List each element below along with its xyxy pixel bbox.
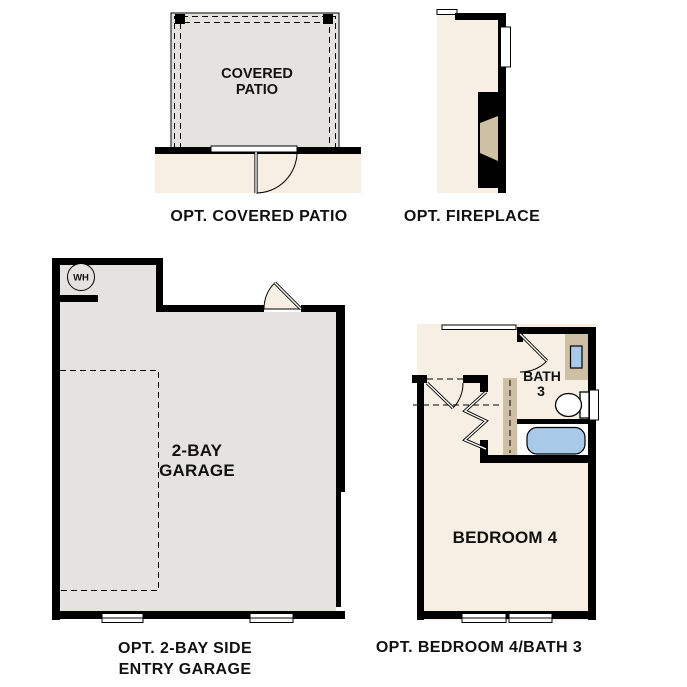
fireplace-plan: OPT. FIREPLACE — [404, 10, 540, 226]
window-behind-toilet — [590, 390, 599, 420]
bath-label-line2: 3 — [537, 383, 545, 399]
floor-plan-drawing: COVERED PATIO OPT. COVERED PATIO OPT. FI… — [0, 0, 687, 687]
garage-floor — [60, 265, 336, 612]
sink — [571, 346, 583, 368]
garage-door-line — [336, 492, 341, 607]
door-header — [211, 146, 297, 152]
caption-bedroom-bath: OPT. BEDROOM 4/BATH 3 — [376, 639, 582, 656]
step-wall — [156, 258, 163, 312]
bedroom4-bath3-plan: BATH 3 BEDROOM 4 OPT. BEDROOM 4/BATH 3 — [376, 324, 599, 656]
patio-room-label-line1: COVERED — [221, 66, 293, 82]
bath-top-wall — [517, 327, 596, 334]
tub-divider-wall — [517, 419, 588, 424]
toilet-bowl — [556, 394, 582, 417]
window-top — [437, 10, 457, 15]
garage-room-label-line1: 2-BAY — [172, 441, 223, 460]
top-left-wall — [52, 258, 163, 265]
patio-post-left — [175, 14, 185, 24]
caption-garage-line2: ENTRY GARAGE — [119, 661, 252, 678]
bottom-wall — [52, 611, 345, 619]
water-heater-nook-wall — [52, 295, 98, 302]
bathtub — [527, 428, 585, 455]
patio-room-label-line2: PATIO — [236, 82, 278, 98]
window-hall-top — [442, 325, 516, 330]
covered-patio-plan: COVERED PATIO OPT. COVERED PATIO — [155, 13, 361, 225]
garage-room-label-line2: GARAGE — [159, 461, 235, 480]
caption-fireplace: OPT. FIREPLACE — [404, 208, 540, 225]
left-wall — [417, 375, 424, 620]
right-wall-upper — [336, 305, 345, 492]
caption-covered-patio: OPT. COVERED PATIO — [170, 208, 347, 225]
bath-label-line1: BATH — [523, 368, 561, 384]
bedroom-label: BEDROOM 4 — [453, 528, 558, 547]
left-wall — [52, 258, 60, 620]
right-wall — [588, 327, 596, 620]
bifold-top-jamb — [480, 383, 488, 392]
garage-plan: WH 2-BAY GARAGE OPT. 2-BAY SIDE ENTRY GA… — [52, 258, 345, 678]
bath-bottom-wall — [480, 455, 596, 463]
top-wall-left-of-door — [156, 305, 264, 312]
window-right — [501, 27, 511, 67]
closet-top-wall-right — [463, 375, 488, 383]
caption-garage-line1: OPT. 2-BAY SIDE — [118, 640, 252, 657]
interior-floor-strip — [155, 154, 361, 193]
floor-plan-sheet: COVERED PATIO OPT. COVERED PATIO OPT. FI… — [0, 0, 687, 687]
patio-post-right — [323, 14, 333, 24]
water-heater-label: WH — [73, 273, 89, 284]
